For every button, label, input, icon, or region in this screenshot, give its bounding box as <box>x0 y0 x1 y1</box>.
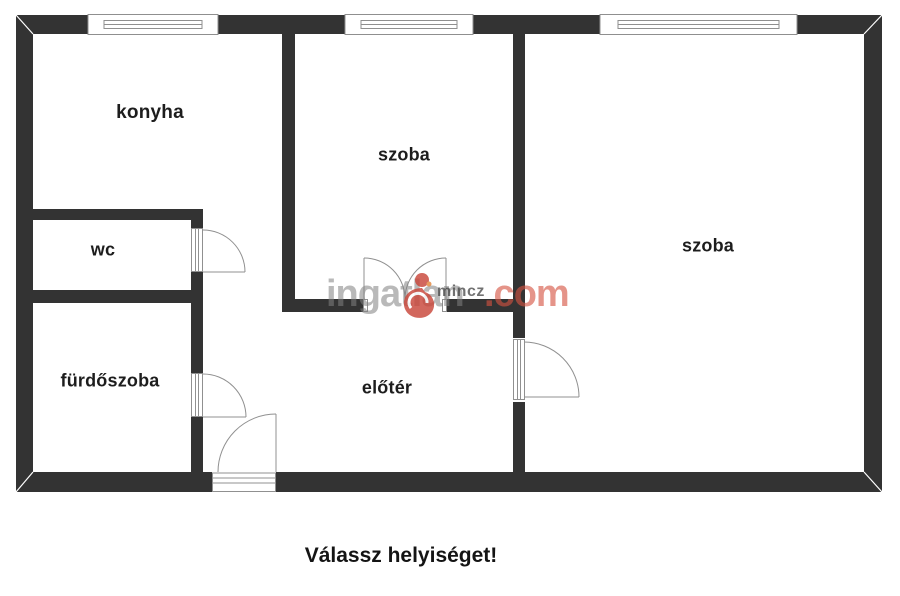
room-label-szoba-kozep[interactable]: szoba <box>378 145 430 166</box>
door-arc-szoba-jobb <box>524 342 579 397</box>
door-wc <box>192 229 246 273</box>
room-label-konyha[interactable]: konyha <box>116 102 184 124</box>
wall-outer-left <box>16 15 33 492</box>
watermark-overlay-text: mincz <box>437 284 485 300</box>
walls <box>16 15 882 492</box>
window-szoba-jobb <box>600 15 797 35</box>
door-szoba-jobb <box>514 340 580 400</box>
door-arc-furdoszoba <box>203 374 246 417</box>
room-label-furdoszoba[interactable]: fürdőszoba <box>61 371 160 392</box>
room-label-szoba-jobb[interactable]: szoba <box>682 236 734 257</box>
wall-konyha-wc <box>33 209 203 220</box>
wall-outer-bottom-left <box>16 472 212 492</box>
door-entrance <box>213 414 277 492</box>
room-label-wc[interactable]: wc <box>91 240 115 261</box>
wall-wc-furdo-right <box>191 272 203 373</box>
wall-eloter-szoba2-lower <box>513 402 525 472</box>
ingatlan-logo-icon <box>398 272 438 322</box>
door-furdoszoba <box>192 374 247 418</box>
window-konyha <box>88 15 218 35</box>
room-label-eloter[interactable]: előtér <box>362 378 412 399</box>
wall-outer-right <box>864 15 882 492</box>
corner-miters <box>16 15 882 492</box>
door-arc-entrance <box>218 414 276 472</box>
watermark-suffix-text: .com <box>484 275 569 313</box>
floorplan-canvas: konyha szoba szoba wc fürdőszoba előtér … <box>0 0 900 596</box>
door-arc-wc <box>203 230 245 272</box>
room-picker-prompt: Válassz helyiséget! <box>305 544 498 568</box>
wall-wc-furdo <box>33 290 191 303</box>
windows <box>88 15 797 35</box>
wall-outer-bottom-right <box>276 472 882 492</box>
wall-wc-right-stub <box>191 209 203 228</box>
wall-konyha-szoba <box>282 34 295 312</box>
window-szoba-kozep <box>345 15 473 35</box>
wall-furdo-right-lower <box>191 417 203 472</box>
